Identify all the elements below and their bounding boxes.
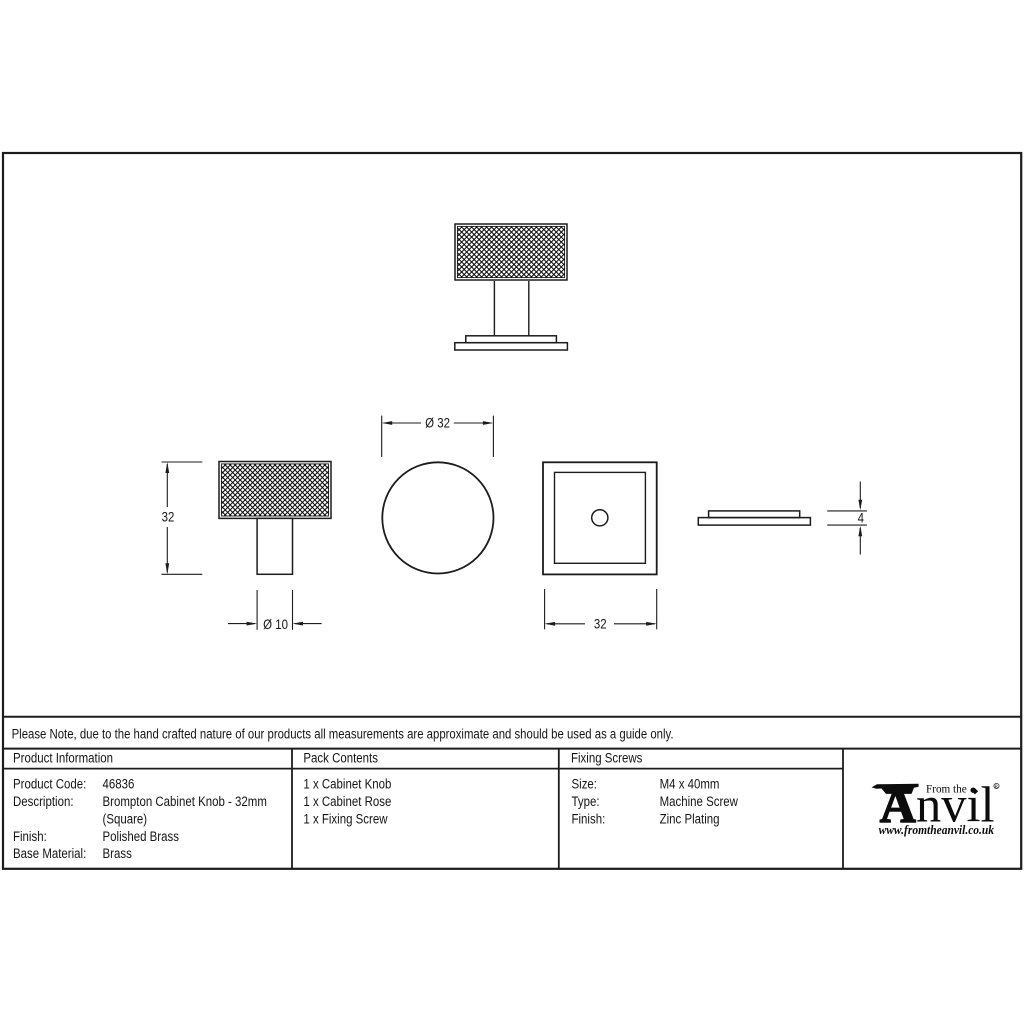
svg-text:1 x Fixing Screw: 1 x Fixing Screw (303, 811, 388, 826)
svg-text:Fixing Screws: Fixing Screws (571, 751, 642, 766)
svg-text:Finish:: Finish: (572, 811, 606, 826)
svg-text:Machine Screw: Machine Screw (660, 794, 739, 809)
svg-text:46836: 46836 (103, 777, 135, 792)
svg-text:Base Material:: Base Material: (13, 846, 86, 861)
svg-text:32: 32 (162, 510, 175, 525)
svg-text:From the: From the (926, 783, 967, 795)
svg-text:Product Information: Product Information (13, 751, 113, 766)
svg-text:1 x Cabinet Rose: 1 x Cabinet Rose (303, 794, 391, 809)
svg-text:32: 32 (594, 617, 607, 632)
svg-text:Ø 32: Ø 32 (425, 416, 450, 431)
svg-text:1 x Cabinet Knob: 1 x Cabinet Knob (303, 777, 391, 792)
svg-text:Pack Contents: Pack Contents (303, 751, 378, 766)
svg-text:Polished Brass: Polished Brass (103, 829, 179, 844)
svg-text:M4 x 40mm: M4 x 40mm (660, 777, 720, 792)
svg-text:Size:: Size: (572, 777, 597, 792)
svg-text:4: 4 (858, 510, 864, 525)
svg-text:Product Code:: Product Code: (13, 777, 86, 792)
svg-text:(Square): (Square) (103, 811, 148, 826)
svg-text:Please Note, due to the hand c: Please Note, due to the hand crafted nat… (12, 726, 674, 741)
svg-text:Ø 10: Ø 10 (263, 617, 288, 632)
svg-text:Description:: Description: (13, 794, 74, 809)
svg-text:Finish:: Finish: (13, 829, 47, 844)
svg-text:www.fromtheanvil.co.uk: www.fromtheanvil.co.uk (879, 823, 994, 838)
svg-text:Brass: Brass (103, 846, 132, 861)
svg-text:Brompton Cabinet Knob - 32mm: Brompton Cabinet Knob - 32mm (103, 794, 267, 809)
svg-text:Zinc Plating: Zinc Plating (660, 811, 720, 826)
svg-text:Type:: Type: (572, 794, 600, 809)
